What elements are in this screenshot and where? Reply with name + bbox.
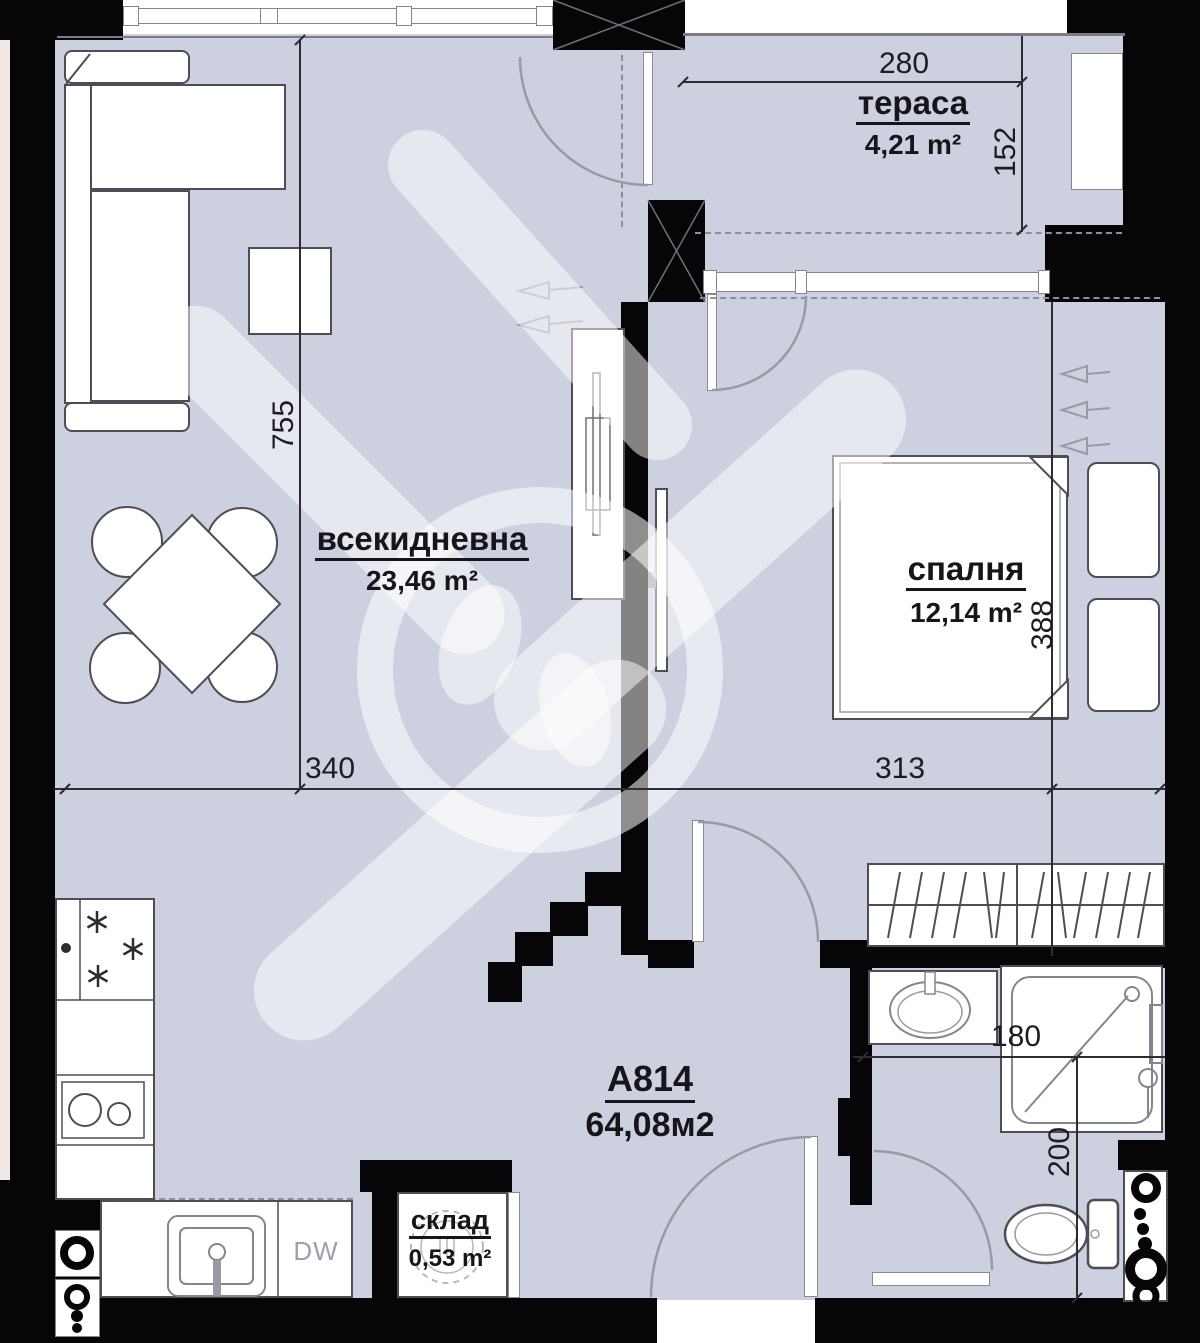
living-window bbox=[123, 8, 553, 24]
terrace-name: тераса bbox=[856, 84, 970, 125]
vestibule-dashed bbox=[621, 55, 623, 227]
wall-step bbox=[488, 962, 522, 1002]
dim-280: 280 bbox=[854, 48, 954, 80]
bedroom-door-leaf bbox=[692, 820, 704, 942]
living-area: 23,46 m² bbox=[312, 566, 532, 595]
window-post bbox=[1038, 270, 1050, 294]
living-label: всекидневна bbox=[312, 522, 532, 557]
sofa-armrest bbox=[64, 50, 190, 84]
window-post bbox=[795, 270, 807, 294]
dim-180: 180 bbox=[966, 1021, 1066, 1053]
pillow bbox=[1087, 462, 1160, 578]
wall bbox=[815, 1298, 1200, 1343]
plumbing-box bbox=[55, 1279, 100, 1337]
bedroom-name: спалня bbox=[906, 550, 1027, 591]
bath-fixture-panel bbox=[1123, 1170, 1168, 1302]
bedroom-label: спалня bbox=[878, 552, 1054, 587]
window-post bbox=[123, 6, 139, 26]
dim-line bbox=[683, 81, 1022, 83]
terrace-parapet bbox=[683, 33, 1125, 36]
storage-label: склад bbox=[398, 1206, 502, 1234]
window-post bbox=[396, 6, 412, 26]
coffee-table bbox=[248, 247, 332, 335]
wall bbox=[621, 302, 648, 955]
wall-step bbox=[585, 872, 623, 906]
wall bbox=[0, 0, 123, 40]
dim-340: 340 bbox=[280, 753, 380, 785]
wall bbox=[1045, 225, 1125, 302]
unit-label: А814 bbox=[570, 1060, 730, 1098]
window-post bbox=[703, 270, 717, 294]
balcony-door-leaf bbox=[707, 294, 717, 391]
floor-plan: тераса 4,21 m² всекидневна 23,46 m² спал… bbox=[0, 0, 1200, 1343]
terrace-door-leaf bbox=[643, 52, 653, 185]
unit-number: А814 bbox=[605, 1058, 695, 1103]
dim-line bbox=[1076, 1057, 1078, 1299]
bath-door-leaf bbox=[872, 1272, 990, 1286]
wall bbox=[360, 1160, 512, 1192]
unit-area: 64,08м2 bbox=[570, 1108, 730, 1144]
living-name: всекидневна bbox=[315, 520, 530, 561]
pillow bbox=[1087, 598, 1160, 712]
wall bbox=[372, 1192, 397, 1298]
kitchen-counter bbox=[55, 898, 155, 1200]
terrace-label: тераса bbox=[828, 86, 998, 121]
terrace-area: 4,21 m² bbox=[828, 130, 998, 159]
storage-area: 0,53 m² bbox=[398, 1246, 502, 1271]
storage-name: склад bbox=[409, 1205, 491, 1239]
sofa-seat bbox=[90, 84, 286, 190]
wall bbox=[553, 0, 685, 50]
ac-unit bbox=[1071, 53, 1123, 190]
sofa-armrest bbox=[64, 402, 190, 432]
dim-line bbox=[853, 1056, 1165, 1058]
wall bbox=[648, 940, 694, 968]
wall bbox=[1165, 302, 1200, 1343]
living-wall-line bbox=[57, 36, 553, 38]
dim-line bbox=[55, 788, 1165, 790]
wall bbox=[1118, 1140, 1172, 1170]
wall bbox=[1123, 0, 1200, 302]
wall-step bbox=[515, 932, 553, 966]
sofa-seat bbox=[90, 190, 190, 402]
plumbing-box bbox=[55, 1230, 100, 1277]
dim-200: 200 bbox=[1044, 1126, 1076, 1178]
adjacent-unit-strip bbox=[0, 40, 10, 1180]
dim-755: 755 bbox=[268, 399, 300, 451]
storage-door-jamb bbox=[508, 1192, 520, 1298]
wall bbox=[10, 40, 55, 1180]
wall bbox=[648, 200, 705, 302]
dim-313: 313 bbox=[850, 753, 950, 785]
dishwasher-label: DW bbox=[291, 1238, 341, 1265]
wall-step bbox=[550, 902, 588, 936]
terrace-edge-dashed bbox=[695, 232, 1122, 234]
window-post bbox=[536, 6, 553, 26]
entry-door-leaf bbox=[804, 1136, 818, 1297]
tv-cabinet bbox=[571, 328, 625, 600]
sofa-back bbox=[64, 84, 92, 404]
wardrobe bbox=[867, 863, 1165, 947]
bedroom-window bbox=[705, 272, 1048, 292]
bedroom-tv bbox=[655, 488, 668, 672]
dim-152: 152 bbox=[990, 126, 1022, 178]
wall bbox=[838, 1098, 872, 1156]
dim-388: 388 bbox=[1027, 599, 1059, 651]
bedroom-dashed bbox=[700, 297, 1160, 299]
window-post bbox=[260, 8, 278, 24]
